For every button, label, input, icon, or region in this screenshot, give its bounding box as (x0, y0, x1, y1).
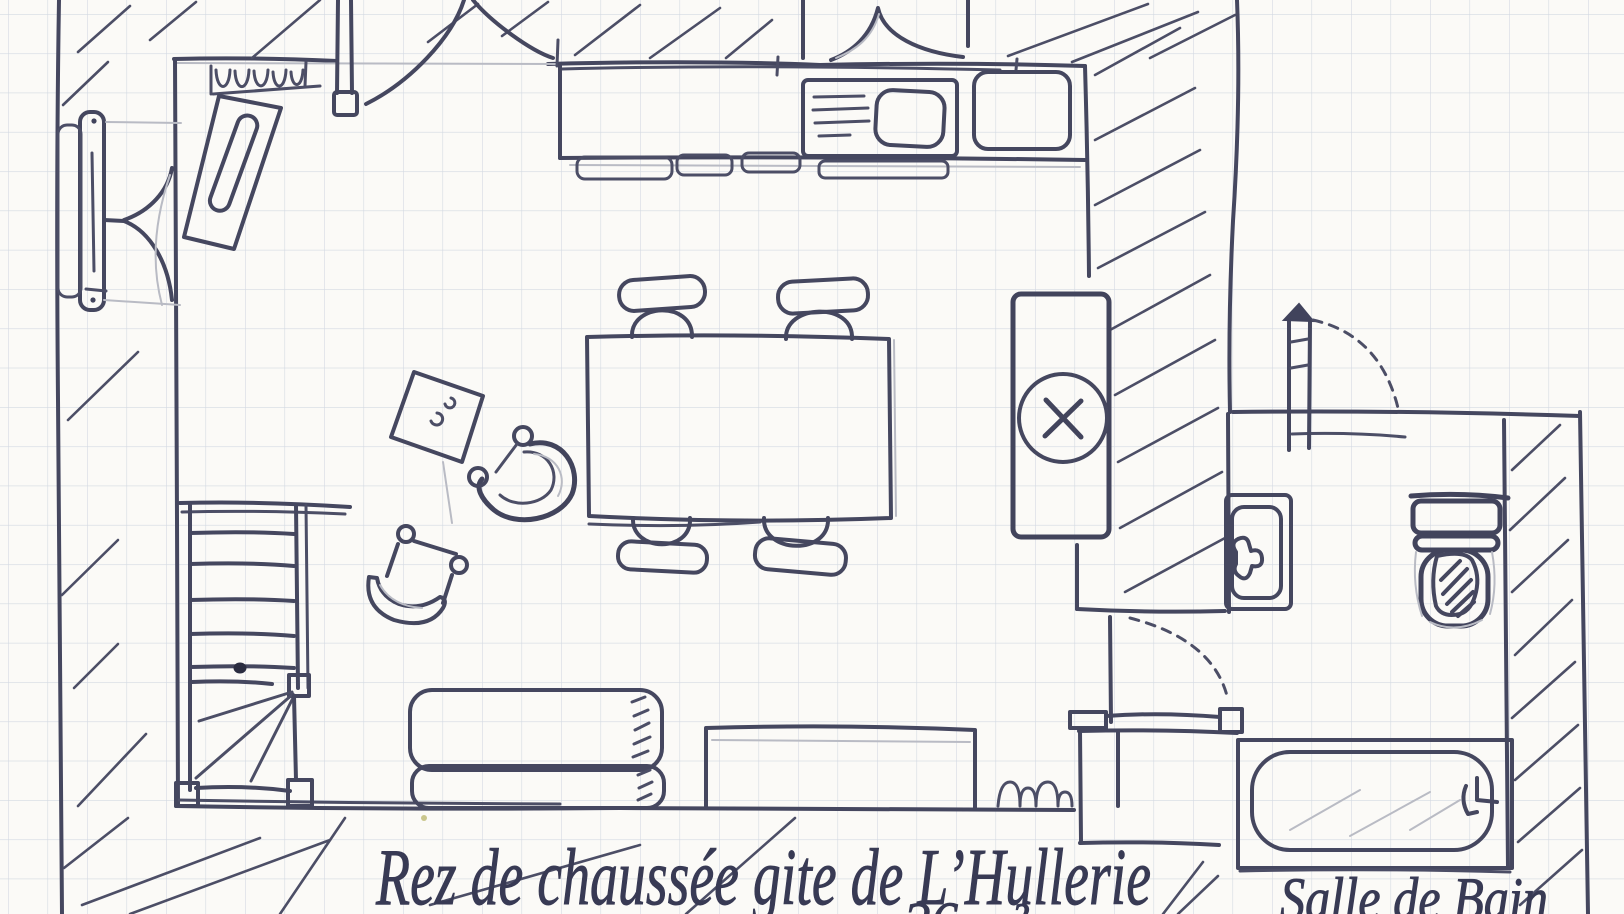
svg-text:Salle de Bain: Salle de Bain (1280, 866, 1548, 914)
svg-text:26 m²: 26 m² (903, 890, 1030, 914)
svg-text:Rez de chaussée gite de L’Hull: Rez de chaussée gite de L’Hullerie (375, 834, 1151, 914)
